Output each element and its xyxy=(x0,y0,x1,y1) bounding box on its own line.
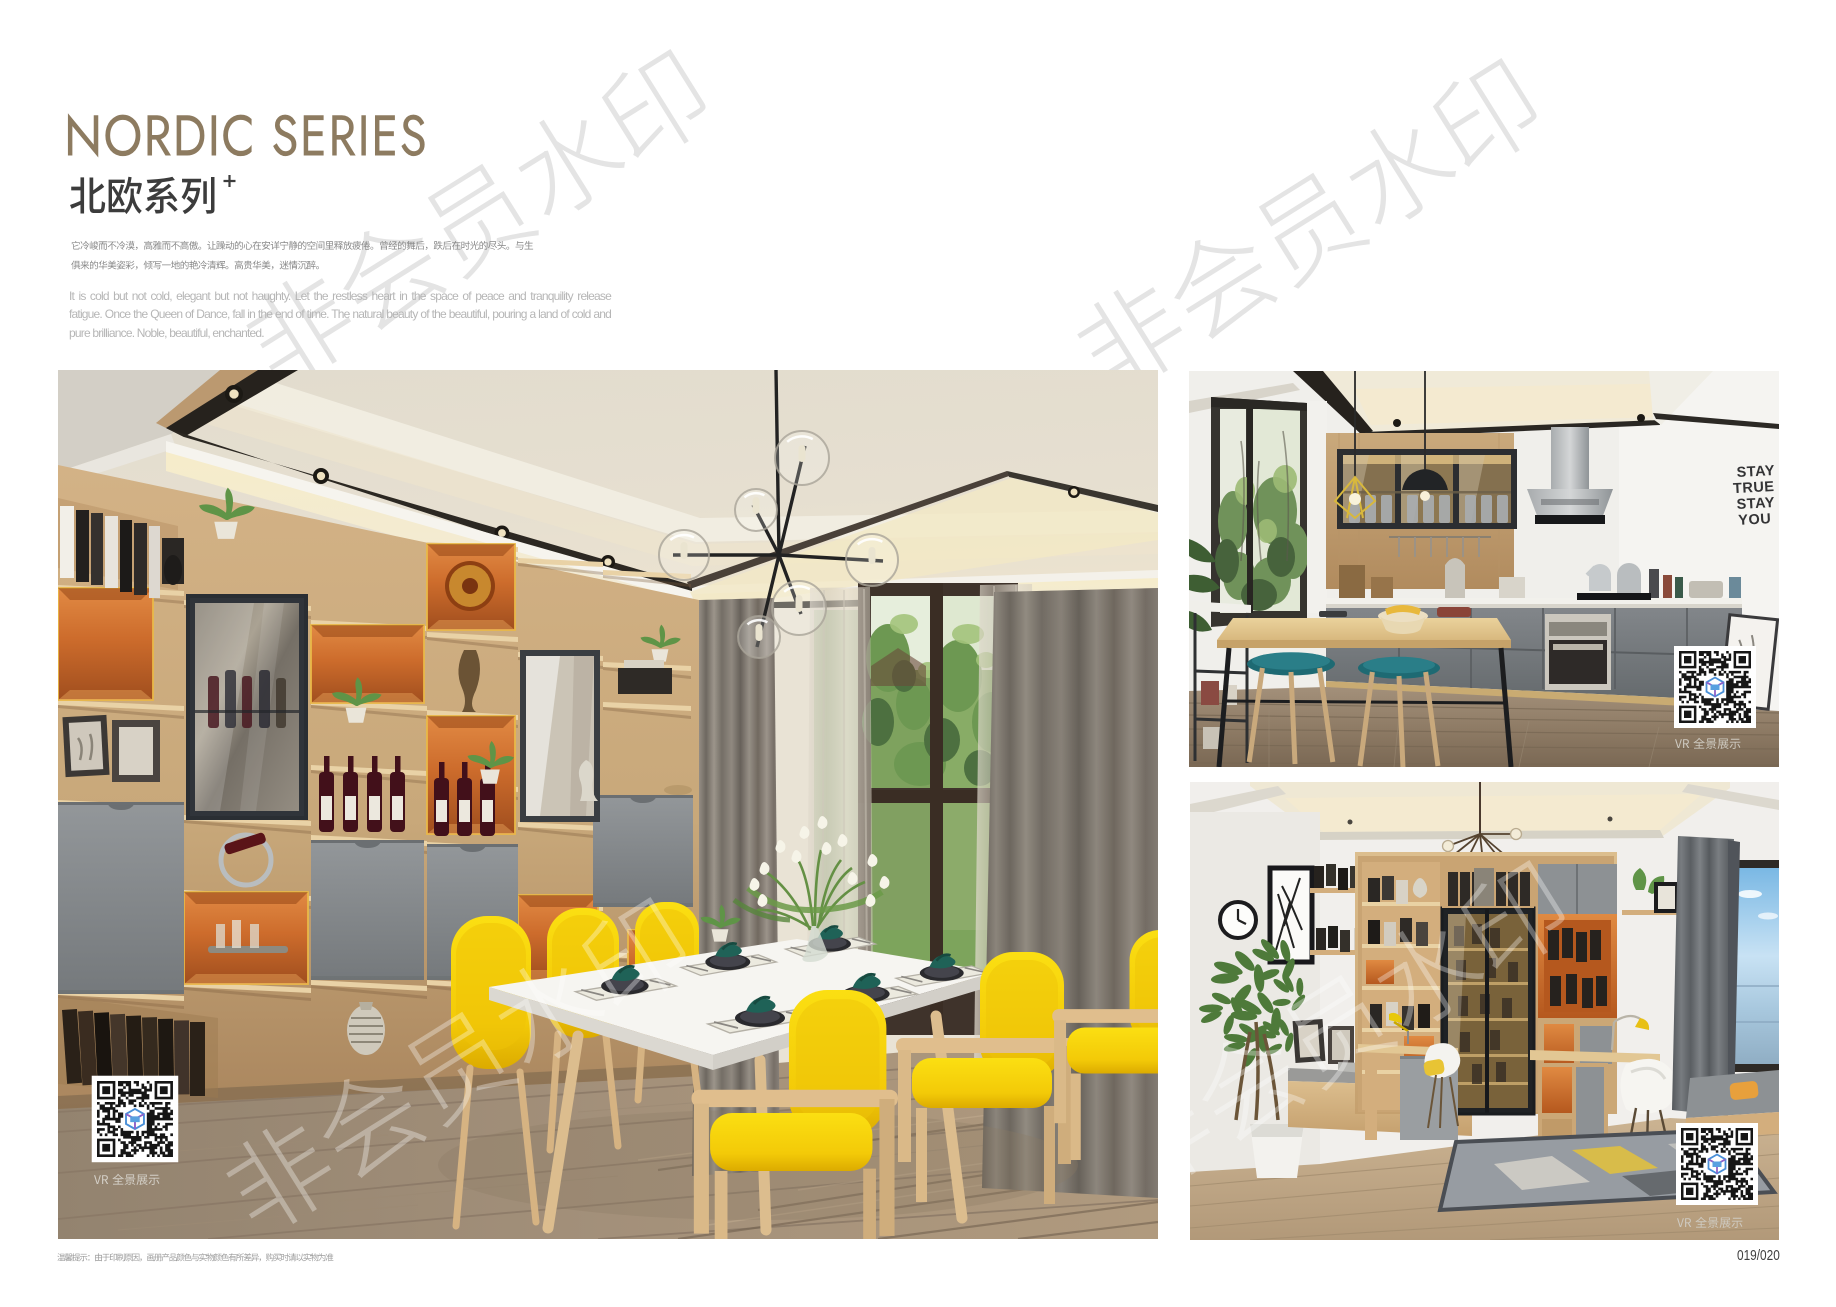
svg-text:YOU: YOU xyxy=(1738,511,1772,529)
